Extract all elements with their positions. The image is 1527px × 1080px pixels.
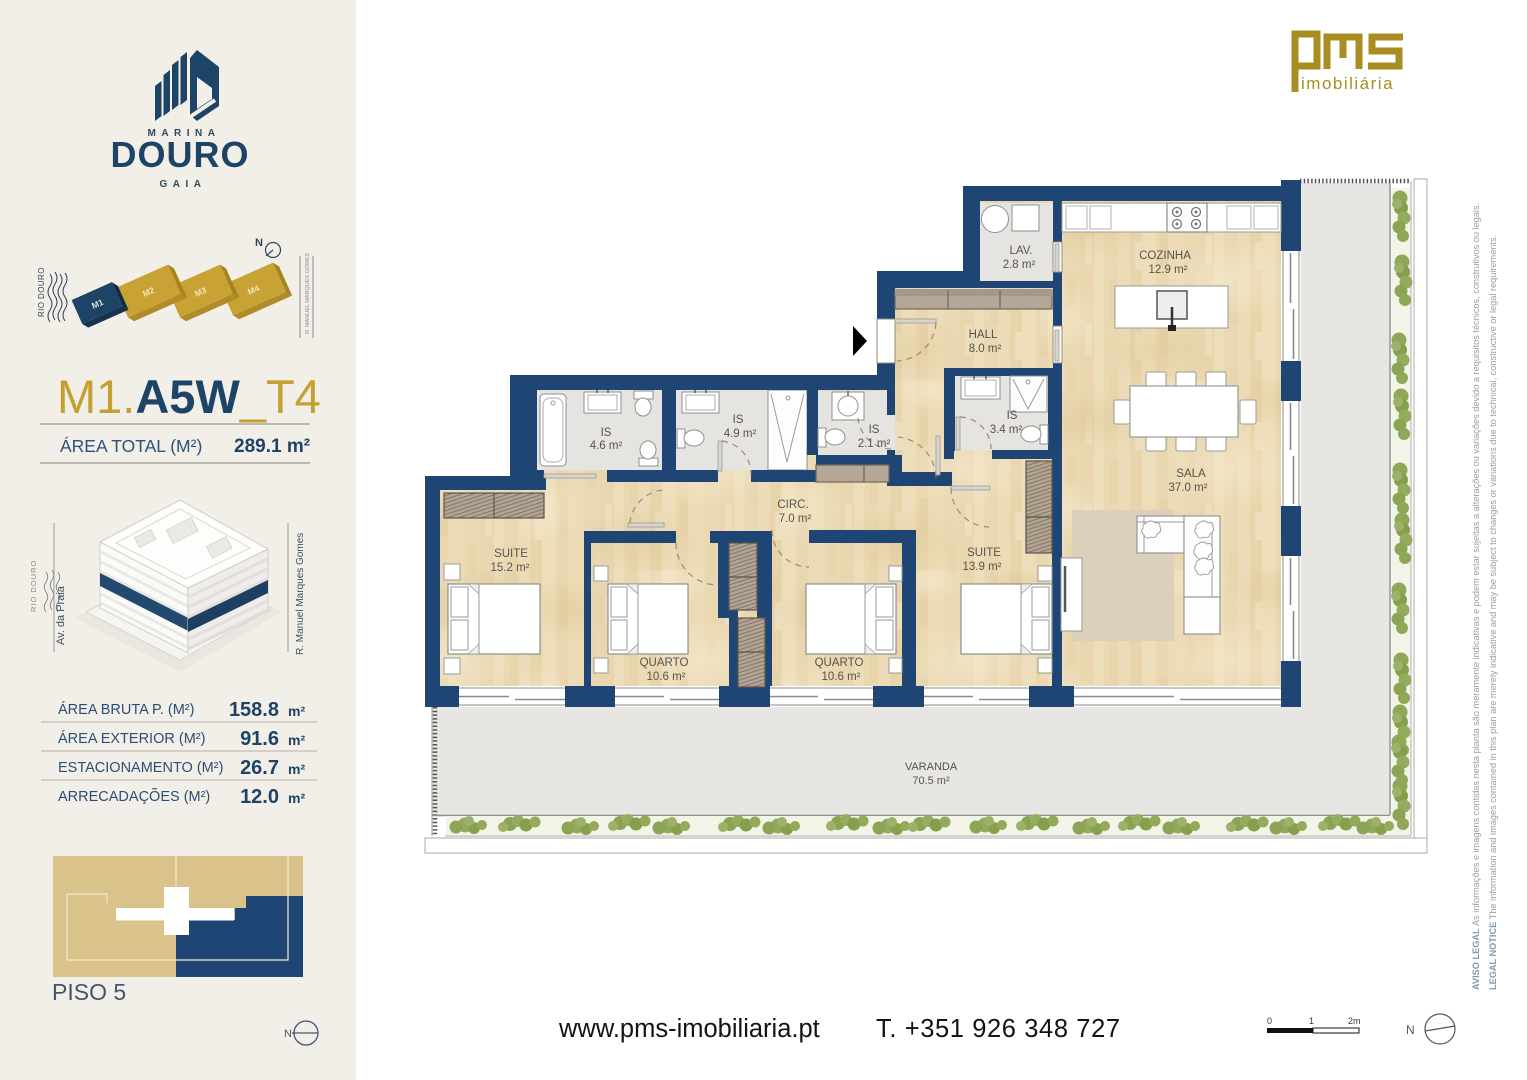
svg-text:1: 1 [1309, 1016, 1314, 1026]
svg-text:0: 0 [1267, 1016, 1272, 1026]
svg-text:8.0 m²: 8.0 m² [969, 343, 1002, 355]
svg-text:15.2 m²: 15.2 m² [491, 562, 530, 574]
svg-text:m²: m² [288, 790, 305, 806]
svg-text:HALL: HALL [969, 329, 998, 341]
svg-text:7.0 m²: 7.0 m² [779, 513, 812, 525]
svg-text:Av. da Praia: Av. da Praia [55, 585, 67, 645]
svg-text:QUARTO: QUARTO [815, 657, 864, 669]
svg-text:4.6 m²: 4.6 m² [590, 440, 623, 452]
svg-text:IS: IS [869, 424, 880, 436]
svg-text:QUARTO: QUARTO [640, 657, 689, 669]
svg-text:PISO 5: PISO 5 [52, 979, 126, 1005]
svg-text:ESTACIONAMENTO (M²): ESTACIONAMENTO (M²) [58, 760, 223, 776]
svg-text:SUITE: SUITE [967, 547, 1001, 559]
svg-text:GAIA: GAIA [160, 179, 207, 190]
svg-text:m²: m² [288, 703, 305, 719]
svg-text:www.pms-imobiliaria.pt: www.pms-imobiliaria.pt [558, 1015, 820, 1043]
svg-text:IS: IS [601, 427, 612, 439]
svg-text:R. MANUEL MARQUES GOMES: R. MANUEL MARQUES GOMES [305, 253, 311, 334]
svg-text:N: N [284, 1028, 292, 1040]
svg-text:10.6 m²: 10.6 m² [647, 671, 686, 683]
svg-text:R. Manuel Marques Gomes: R. Manuel Marques Gomes [295, 533, 306, 655]
svg-text:LEGAL NOTICE The information a: LEGAL NOTICE The information and images … [1488, 235, 1498, 990]
svg-text:CIRC.: CIRC. [777, 499, 808, 511]
svg-text:T. +351 926 348 727: T. +351 926 348 727 [876, 1015, 1121, 1043]
svg-text:12.0: 12.0 [240, 786, 279, 808]
svg-text:3.4 m²: 3.4 m² [990, 424, 1023, 436]
svg-text:COZINHA: COZINHA [1139, 250, 1191, 262]
svg-text:IS: IS [733, 414, 744, 426]
svg-text:ÁREA BRUTA P. (M²): ÁREA BRUTA P. (M²) [58, 701, 194, 718]
svg-text:2.8 m²: 2.8 m² [1003, 259, 1036, 271]
svg-text:M1.A5W_T4: M1.A5W_T4 [57, 370, 321, 423]
svg-text:26.7: 26.7 [240, 757, 279, 779]
svg-text:4.9 m²: 4.9 m² [724, 428, 757, 440]
svg-text:158.8: 158.8 [229, 699, 279, 721]
svg-text:N: N [255, 237, 263, 249]
svg-text:SUITE: SUITE [494, 548, 528, 560]
svg-text:91.6: 91.6 [240, 728, 279, 750]
svg-text:m²: m² [288, 761, 305, 777]
svg-text:12.9 m²: 12.9 m² [1149, 264, 1188, 276]
svg-text:imobiliária: imobiliária [1301, 74, 1394, 93]
svg-text:ÁREA TOTAL (M²): ÁREA TOTAL (M²) [60, 436, 202, 456]
svg-text:10.6 m²: 10.6 m² [822, 671, 861, 683]
svg-text:LAV.: LAV. [1009, 245, 1032, 257]
svg-text:289.1 m²: 289.1 m² [234, 436, 310, 457]
svg-text:ARRECADAÇÕES (M²): ARRECADAÇÕES (M²) [58, 788, 210, 805]
svg-text:13.9 m²: 13.9 m² [963, 561, 1002, 573]
svg-text:IS: IS [1007, 410, 1018, 422]
svg-text:RIO DOURO: RIO DOURO [29, 560, 38, 612]
svg-text:70.5 m²: 70.5 m² [912, 775, 950, 787]
svg-text:2m: 2m [1348, 1016, 1361, 1026]
svg-text:AVISO LEGAL As informações e i: AVISO LEGAL As informações e imagens con… [1471, 203, 1481, 990]
svg-text:RIO DOURO: RIO DOURO [37, 267, 46, 317]
svg-text:VARANDA: VARANDA [905, 761, 958, 773]
svg-text:ÁREA EXTERIOR (M²): ÁREA EXTERIOR (M²) [58, 730, 205, 747]
svg-text:37.0 m²: 37.0 m² [1169, 482, 1208, 494]
svg-text:2.1 m²: 2.1 m² [858, 438, 891, 450]
svg-text:N: N [1406, 1023, 1415, 1037]
svg-text:m²: m² [288, 732, 305, 748]
svg-text:DOURO: DOURO [111, 134, 250, 175]
svg-text:SALA: SALA [1176, 468, 1206, 480]
